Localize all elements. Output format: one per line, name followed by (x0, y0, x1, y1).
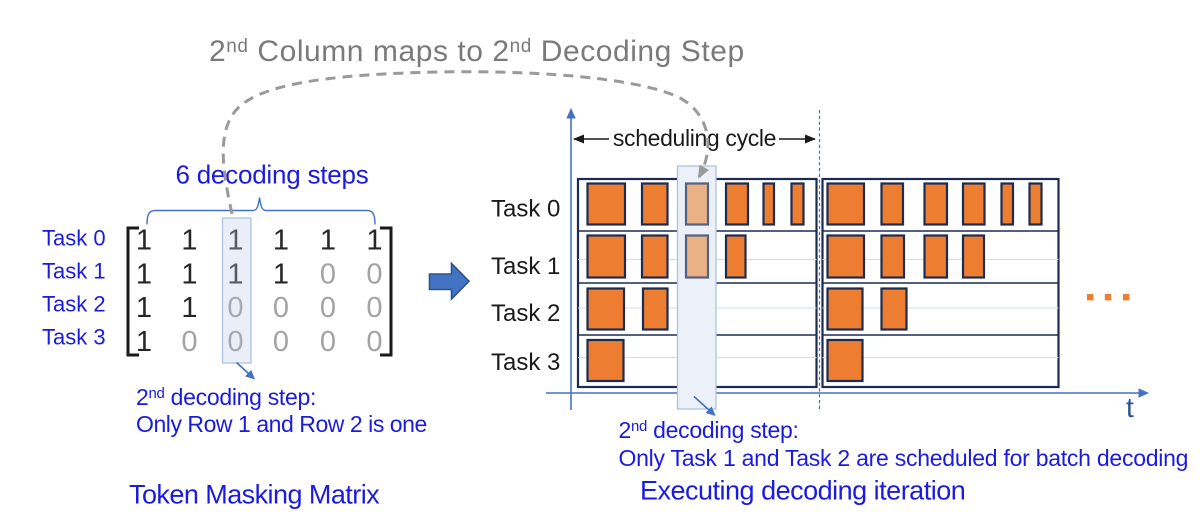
svg-text:0: 0 (320, 258, 336, 290)
svg-text:0: 0 (366, 292, 382, 324)
svg-text:1: 1 (181, 292, 197, 324)
svg-text:Only Row 1 and Row 2 is one: Only Row 1 and Row 2 is one (136, 411, 427, 437)
svg-text:1: 1 (273, 258, 289, 290)
svg-text:1: 1 (320, 225, 336, 257)
svg-text:0: 0 (273, 292, 289, 324)
svg-text:0: 0 (366, 258, 382, 290)
svg-text:1: 1 (136, 225, 152, 257)
svg-text:2nd decoding step:: 2nd decoding step: (136, 384, 316, 410)
svg-text:Task 2: Task 2 (491, 300, 560, 327)
svg-text:0: 0 (181, 326, 197, 358)
svg-text:Task 1: Task 1 (491, 253, 560, 280)
svg-text:1: 1 (136, 326, 152, 358)
svg-text:1: 1 (136, 258, 152, 290)
svg-text:t: t (1126, 392, 1134, 423)
svg-text:1: 1 (181, 258, 197, 290)
svg-text:Token Masking Matrix: Token Masking Matrix (129, 480, 380, 510)
svg-text:0: 0 (320, 292, 336, 324)
svg-text:0: 0 (320, 326, 336, 358)
svg-text:1: 1 (181, 225, 197, 257)
svg-text:6 decoding steps: 6 decoding steps (175, 160, 368, 190)
svg-text:Executing decoding iteration: Executing decoding iteration (640, 476, 965, 506)
svg-text:Task 2: Task 2 (42, 292, 106, 317)
svg-text:scheduling cycle: scheduling cycle (613, 125, 776, 151)
svg-text:2nd Column maps to 2nd Decodin: 2nd Column maps to 2nd Decoding Step (209, 35, 745, 68)
svg-text:1: 1 (366, 225, 382, 257)
svg-text:0: 0 (366, 326, 382, 358)
svg-text:0: 0 (273, 326, 289, 358)
svg-text:0: 0 (227, 292, 243, 324)
svg-text:1: 1 (227, 225, 243, 257)
svg-text:2nd decoding step:: 2nd decoding step: (619, 417, 799, 443)
svg-text:Task 3: Task 3 (491, 349, 560, 376)
svg-text:1: 1 (273, 225, 289, 257)
svg-text:1: 1 (227, 258, 243, 290)
svg-text:1: 1 (136, 292, 152, 324)
svg-text:Task 0: Task 0 (491, 196, 560, 223)
svg-text:Only Task 1 and Task 2 are sch: Only Task 1 and Task 2 are scheduled for… (619, 445, 1189, 471)
svg-text:Task 1: Task 1 (42, 259, 106, 284)
svg-text:0: 0 (227, 326, 243, 358)
svg-text:Task 0: Task 0 (42, 226, 106, 251)
svg-text:Task 3: Task 3 (42, 325, 106, 350)
